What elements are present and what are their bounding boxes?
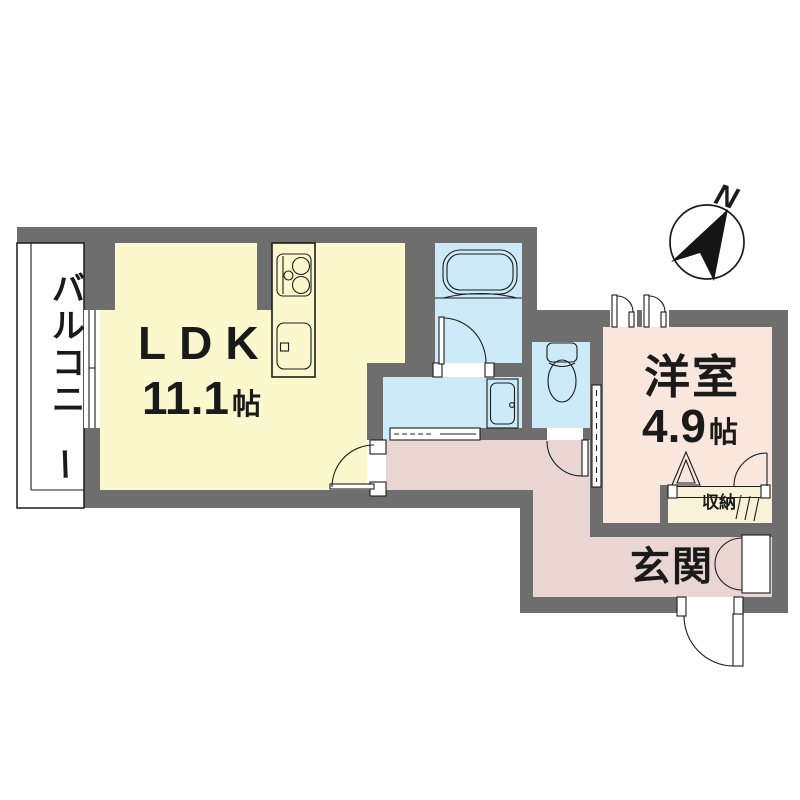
western-room-label: 洋室 bbox=[644, 351, 740, 403]
balcony-window bbox=[84, 310, 100, 428]
washroom-sliding-door bbox=[390, 428, 480, 440]
floor-plan: N バルコニー LDK 11.1帖 洋室 4.9帖 玄関 収納 bbox=[0, 0, 800, 800]
closet-label: 収納 bbox=[702, 492, 736, 512]
ldk-label: LDK bbox=[138, 317, 272, 369]
toilet-floor bbox=[532, 342, 590, 428]
entrance-label: 玄関 bbox=[630, 545, 714, 589]
corridor-floor bbox=[383, 440, 592, 492]
corridor-connector-floor bbox=[533, 492, 592, 597]
floor-plan-canvas: N バルコニー LDK 11.1帖 洋室 4.9帖 玄関 収納 bbox=[0, 0, 800, 800]
western-room-sliding-door bbox=[592, 385, 601, 487]
